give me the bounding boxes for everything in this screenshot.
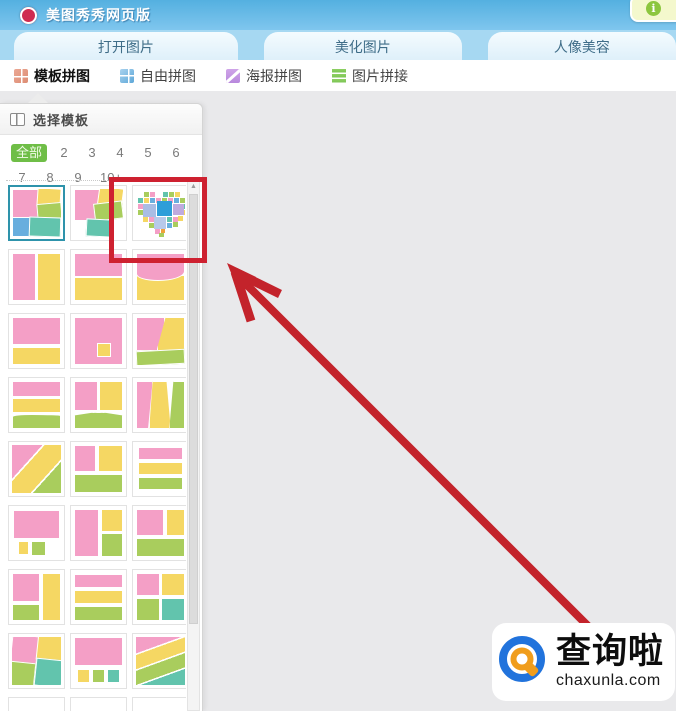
template-shape bbox=[136, 538, 185, 557]
highlight-box bbox=[109, 177, 207, 263]
template-preview bbox=[74, 317, 123, 365]
template-grid bbox=[8, 185, 186, 711]
template-shape bbox=[74, 637, 123, 666]
template-shape bbox=[74, 445, 96, 472]
toolbar-item-label: 图片拼接 bbox=[352, 66, 408, 86]
template-shape bbox=[101, 533, 123, 557]
template-shape bbox=[74, 574, 123, 588]
template-shape bbox=[28, 216, 61, 237]
watermark: 查询啦 chaxunla.com bbox=[492, 623, 675, 701]
template-preview bbox=[12, 253, 61, 301]
template-shape bbox=[161, 598, 185, 621]
template-thumbnail[interactable] bbox=[132, 313, 186, 369]
sidebar-title: 选择模板 bbox=[33, 110, 89, 129]
template-shape bbox=[92, 669, 105, 683]
template-shape bbox=[42, 573, 61, 621]
free-collage-icon bbox=[120, 69, 134, 83]
template-preview bbox=[12, 381, 61, 429]
template-preview bbox=[136, 317, 185, 365]
watermark-text: 查询啦 chaxunla.com bbox=[556, 634, 664, 690]
template-thumbnail[interactable] bbox=[132, 441, 186, 497]
chaxunla-logo-icon bbox=[492, 631, 554, 693]
toolbar-item-free-collage[interactable]: 自由拼图 bbox=[112, 60, 204, 91]
template-shape bbox=[136, 637, 185, 685]
toolbar-item-label: 海报拼图 bbox=[246, 66, 302, 86]
template-preview bbox=[12, 701, 61, 711]
template-preview bbox=[74, 637, 123, 685]
template-thumbnail[interactable] bbox=[132, 697, 186, 711]
template-thumbnail[interactable] bbox=[70, 697, 127, 711]
template-thumbnail[interactable] bbox=[8, 633, 65, 689]
template-preview bbox=[74, 381, 123, 429]
template-preview bbox=[12, 637, 61, 685]
template-thumbnail[interactable] bbox=[132, 377, 186, 433]
template-shape bbox=[12, 573, 40, 602]
template-thumbnail[interactable] bbox=[8, 185, 65, 241]
filter-chip-2[interactable]: 2 bbox=[53, 144, 75, 162]
template-thumbnail[interactable] bbox=[132, 569, 186, 625]
toolbar-item-template-collage[interactable]: 模板拼图 bbox=[6, 60, 98, 91]
window-title: 美图秀秀网页版 bbox=[46, 5, 151, 25]
template-thumbnail[interactable] bbox=[70, 441, 127, 497]
photo-stitch-icon bbox=[332, 69, 346, 83]
template-preview bbox=[12, 445, 61, 493]
info-icon: i bbox=[646, 1, 661, 16]
template-shape bbox=[74, 317, 123, 365]
template-shape bbox=[107, 669, 120, 683]
template-preview bbox=[136, 445, 185, 493]
template-preview bbox=[74, 445, 123, 493]
template-shape bbox=[12, 381, 61, 397]
template-preview bbox=[12, 317, 61, 365]
template-preview bbox=[136, 701, 185, 711]
template-shape bbox=[18, 541, 29, 555]
filter-chip-4[interactable]: 4 bbox=[109, 144, 131, 162]
template-preview bbox=[136, 573, 185, 621]
filter-chip-3[interactable]: 3 bbox=[81, 144, 103, 162]
template-thumbnail[interactable] bbox=[8, 377, 65, 433]
collage-mode-toolbar: 模板拼图 自由拼图 海报拼图 图片拼接 bbox=[0, 60, 676, 91]
template-thumbnail[interactable] bbox=[8, 441, 65, 497]
panel-pointer-notch bbox=[28, 93, 48, 103]
template-shape bbox=[74, 412, 123, 429]
meitu-logo-icon bbox=[20, 7, 37, 24]
template-shape bbox=[13, 510, 60, 539]
tab-portrait-beauty[interactable]: 人像美容 bbox=[488, 32, 676, 62]
template-shape bbox=[33, 658, 61, 685]
template-shape bbox=[77, 669, 90, 683]
template-shape bbox=[74, 277, 123, 301]
template-thumbnail[interactable] bbox=[8, 249, 65, 305]
template-preview bbox=[74, 701, 123, 711]
template-preview bbox=[74, 573, 123, 621]
template-preview bbox=[12, 509, 61, 557]
template-preview bbox=[136, 509, 185, 557]
filter-chip-6[interactable]: 6 bbox=[165, 144, 187, 162]
template-thumbnail[interactable] bbox=[8, 313, 65, 369]
template-thumbnail[interactable] bbox=[132, 505, 186, 561]
watermark-domain: chaxunla.com bbox=[556, 672, 664, 690]
template-shape bbox=[101, 509, 123, 532]
template-preview bbox=[12, 189, 61, 237]
info-button[interactable]: i bbox=[630, 0, 676, 22]
template-shape bbox=[12, 445, 61, 493]
template-shape bbox=[136, 509, 164, 536]
template-shape bbox=[136, 573, 160, 596]
template-shape bbox=[136, 598, 160, 621]
template-shape bbox=[149, 381, 171, 429]
template-thumbnail[interactable] bbox=[8, 505, 65, 561]
template-shape bbox=[138, 477, 182, 490]
template-preview bbox=[136, 381, 185, 429]
template-shape bbox=[97, 343, 112, 357]
toolbar-item-poster-collage[interactable]: 海报拼图 bbox=[218, 60, 310, 91]
template-shape bbox=[12, 398, 61, 412]
toolbar-item-label: 模板拼图 bbox=[34, 66, 90, 86]
poster-collage-icon bbox=[226, 69, 240, 83]
template-panel-icon bbox=[10, 113, 25, 126]
tab-beautify-image[interactable]: 美化图片 bbox=[264, 32, 462, 62]
template-collage-icon bbox=[14, 69, 28, 83]
template-preview bbox=[12, 573, 61, 621]
template-shape bbox=[138, 447, 182, 460]
title-bar: 美图秀秀网页版 i bbox=[0, 0, 676, 30]
toolbar-item-label: 自由拼图 bbox=[140, 66, 196, 86]
template-shape bbox=[12, 414, 61, 429]
template-thumbnail[interactable] bbox=[8, 569, 65, 625]
template-shape bbox=[74, 590, 123, 604]
template-thumbnail[interactable] bbox=[70, 569, 127, 625]
template-thumbnail[interactable] bbox=[70, 633, 127, 689]
template-shape bbox=[161, 573, 185, 596]
template-thumbnail[interactable] bbox=[70, 313, 127, 369]
template-preview bbox=[74, 509, 123, 557]
template-shape bbox=[37, 253, 61, 301]
filter-chip-5[interactable]: 5 bbox=[137, 144, 159, 162]
tab-open-image[interactable]: 打开图片 bbox=[14, 32, 238, 62]
template-shape bbox=[74, 381, 98, 411]
template-shape bbox=[138, 462, 182, 475]
template-shape bbox=[12, 347, 61, 365]
template-shape bbox=[74, 606, 123, 620]
template-shape bbox=[99, 381, 123, 411]
template-shape bbox=[169, 381, 185, 429]
template-shape bbox=[166, 509, 185, 536]
template-thumbnail[interactable] bbox=[70, 505, 127, 561]
template-shape bbox=[12, 317, 61, 345]
filter-chip-all[interactable]: 全部 bbox=[11, 144, 47, 162]
template-thumbnail[interactable] bbox=[132, 633, 186, 689]
template-shape bbox=[12, 604, 40, 621]
template-shape bbox=[74, 509, 99, 557]
template-shape bbox=[74, 474, 123, 493]
tab-strip: 打开图片 美化图片 人像美容 bbox=[0, 30, 676, 60]
template-thumbnail[interactable] bbox=[8, 697, 65, 711]
template-preview bbox=[136, 637, 185, 685]
template-thumbnail[interactable] bbox=[70, 377, 127, 433]
sidebar-header: 选择模板 bbox=[0, 104, 202, 135]
template-shape bbox=[136, 348, 185, 365]
template-shape bbox=[12, 253, 36, 301]
template-shape bbox=[98, 445, 123, 472]
template-shape bbox=[31, 541, 47, 556]
toolbar-item-photo-stitch[interactable]: 图片拼接 bbox=[324, 60, 416, 91]
watermark-brand: 查询啦 bbox=[556, 634, 664, 670]
